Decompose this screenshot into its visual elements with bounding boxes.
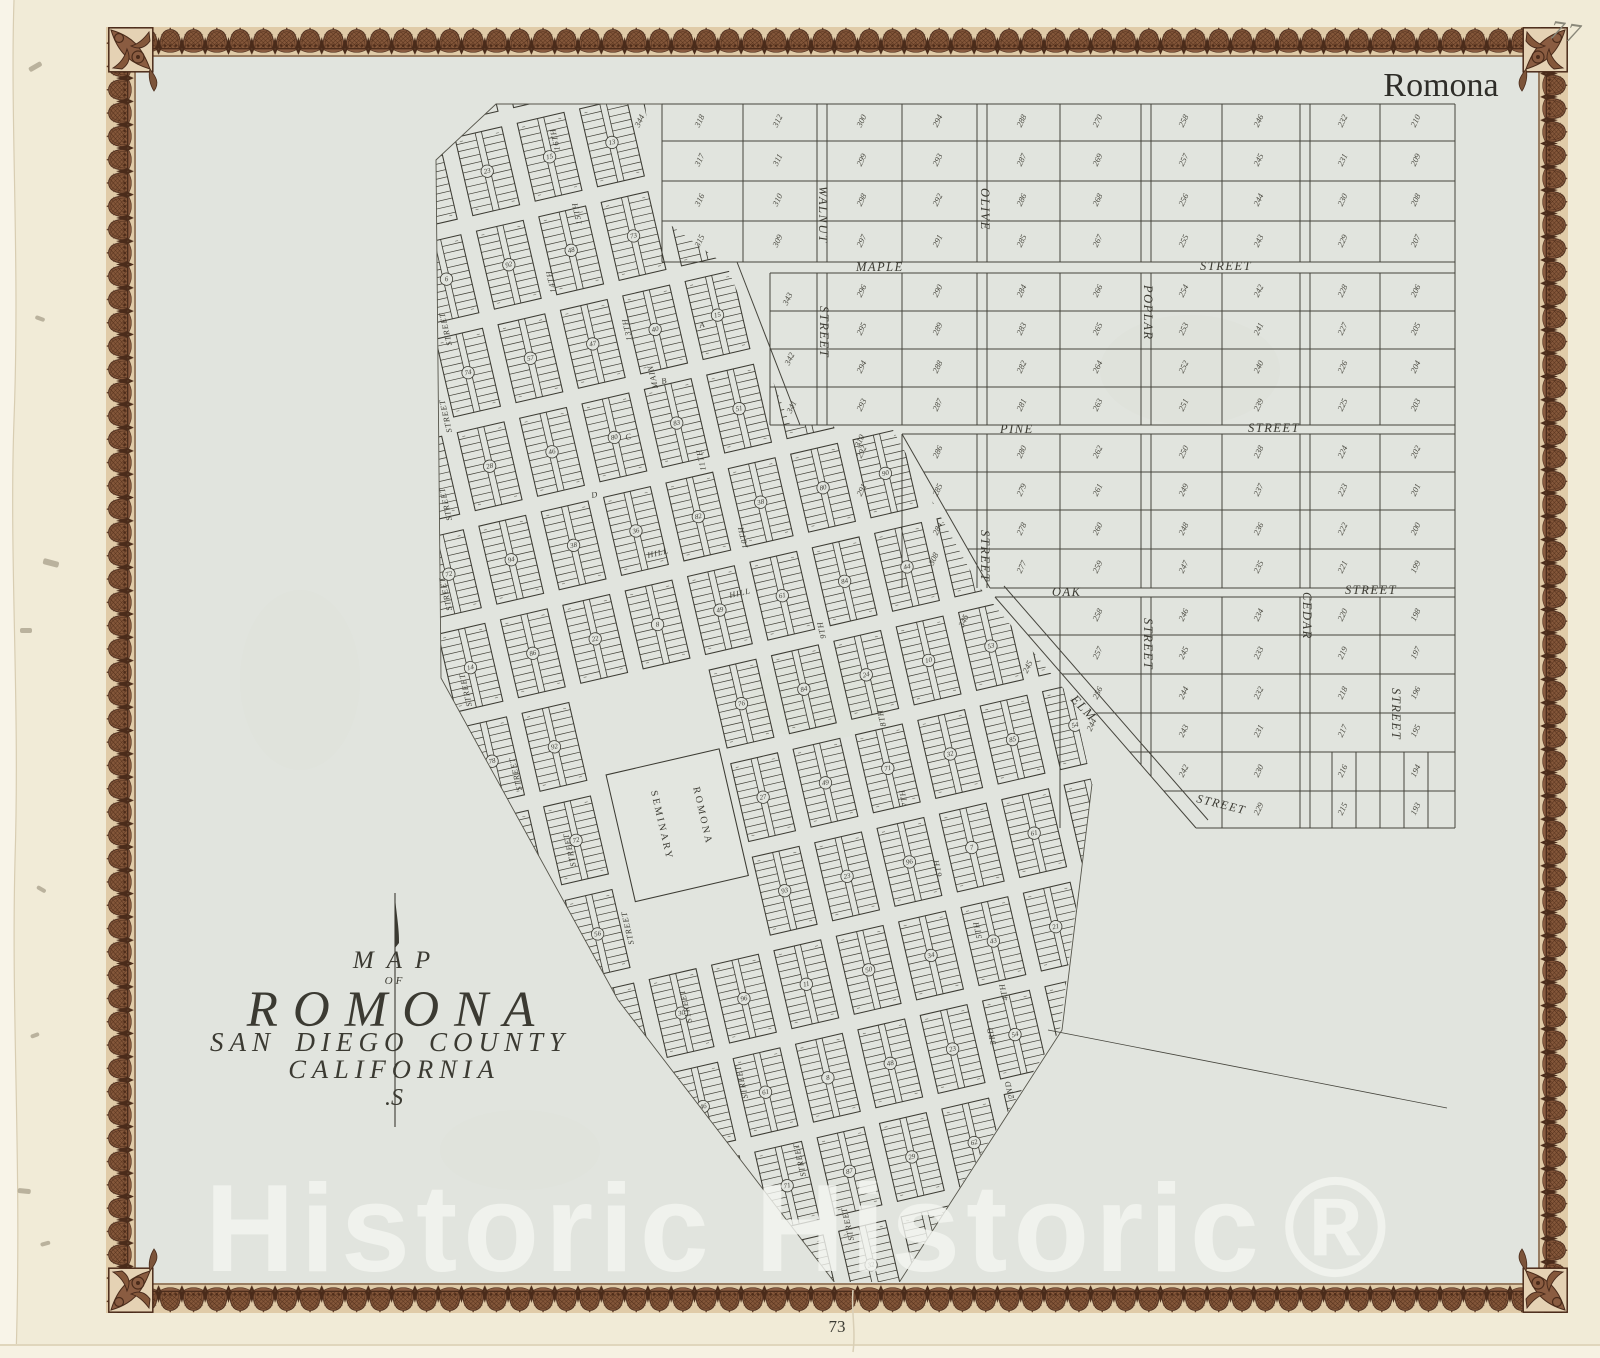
svg-text:73: 73 bbox=[829, 1317, 846, 1336]
svg-text:.S: .S bbox=[385, 1085, 403, 1111]
svg-text:MAP: MAP bbox=[352, 947, 443, 974]
svg-text:®: ® bbox=[1283, 1148, 1388, 1307]
svg-text:STREET: STREET bbox=[1345, 583, 1397, 597]
svg-text:STREET: STREET bbox=[978, 530, 992, 582]
svg-text:SAN DIEGO COUNTY: SAN DIEGO COUNTY bbox=[210, 1027, 570, 1057]
svg-text:PINE: PINE bbox=[999, 422, 1034, 436]
svg-text:77: 77 bbox=[1548, 14, 1585, 49]
svg-text:WALNUT: WALNUT bbox=[816, 186, 830, 243]
svg-text:STREET: STREET bbox=[817, 306, 831, 358]
svg-text:OLIVE: OLIVE bbox=[978, 188, 992, 231]
svg-text:CEDAR: CEDAR bbox=[1300, 592, 1314, 640]
svg-text:Romona: Romona bbox=[1383, 67, 1498, 104]
svg-text:STREET: STREET bbox=[1200, 259, 1252, 273]
svg-text:POPLAR: POPLAR bbox=[1141, 284, 1155, 341]
svg-text:CALIFORNIA: CALIFORNIA bbox=[288, 1054, 500, 1084]
svg-text:STREET: STREET bbox=[1389, 688, 1403, 740]
svg-text:MAPLE: MAPLE bbox=[855, 260, 904, 274]
svg-text:Historic Historic: Historic Historic bbox=[205, 1160, 1265, 1298]
svg-text:STREET: STREET bbox=[1141, 618, 1155, 670]
svg-text:STREET: STREET bbox=[1248, 421, 1300, 435]
svg-text:OAK: OAK bbox=[1052, 585, 1082, 599]
